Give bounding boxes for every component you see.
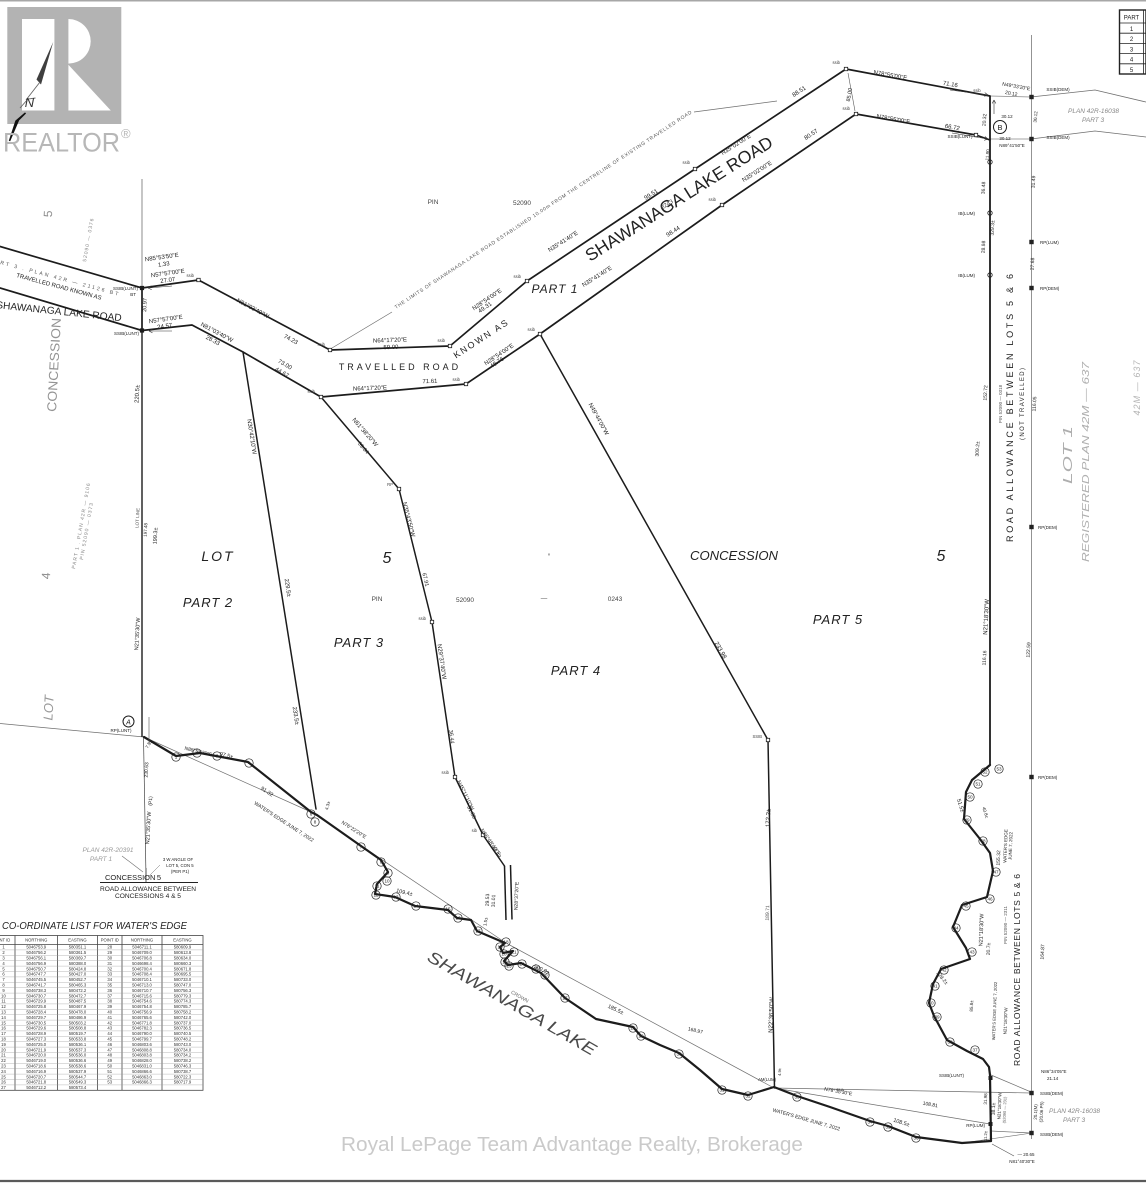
svg-text:5046747.7: 5046747.7	[26, 972, 46, 977]
svg-text:SSIB(LUNT): SSIB(LUNT)	[939, 1073, 965, 1078]
svg-text:52090: 52090	[513, 200, 531, 207]
svg-text:CO-ORDINATE LIST FOR WATER': CO-ORDINATE LIST FOR WATER'S EDGE	[2, 920, 188, 932]
svg-text:580785.7: 580785.7	[174, 1004, 192, 1009]
svg-text:24: 24	[1, 1069, 6, 1074]
svg-text:5046716.9: 5046716.9	[26, 1069, 46, 1074]
svg-text:580737.0: 580737.0	[174, 1020, 192, 1025]
svg-text:580695.5: 580695.5	[174, 972, 192, 977]
svg-text:43: 43	[107, 1026, 112, 1031]
svg-text:CONCESSION: CONCESSION	[690, 548, 779, 563]
svg-text:71.61: 71.61	[422, 379, 438, 386]
svg-text:34: 34	[867, 1120, 873, 1125]
svg-text:580533.8: 580533.8	[69, 1037, 87, 1042]
svg-text:51: 51	[975, 782, 981, 787]
svg-text:N21°18'30"W: N21°18'30"W	[1003, 1007, 1009, 1035]
svg-text:ssib: ssib	[442, 770, 450, 775]
svg-text:24: 24	[519, 962, 525, 967]
svg-text:5: 5	[41, 210, 55, 218]
svg-text:52090: 52090	[456, 597, 474, 604]
svg-text:RP: RP	[387, 482, 393, 487]
svg-text:RP(DEM): RP(DEM)	[1040, 286, 1060, 291]
svg-text:5046738.3: 5046738.3	[26, 988, 46, 993]
svg-text:PIN: PIN	[428, 199, 439, 206]
svg-text:16: 16	[455, 916, 461, 921]
svg-text:42M — 637: 42M — 637	[1132, 360, 1142, 416]
svg-text:ssib: ssib	[453, 377, 461, 382]
svg-text:580746.3: 580746.3	[174, 1064, 192, 1069]
svg-text:TRAVELLED ROAD: TRAVELLED ROAD	[339, 362, 461, 372]
svg-text:580503.2: 580503.2	[69, 1020, 87, 1025]
svg-text:189.71: 189.71	[765, 905, 772, 921]
svg-text:3 W ANGLE OF: 3 W ANGLE OF	[163, 857, 194, 862]
svg-text:44: 44	[107, 1031, 112, 1036]
svg-text:580536.0: 580536.0	[69, 1053, 87, 1058]
svg-text:5046729.9: 5046729.9	[26, 999, 46, 1004]
svg-text:REALTOR: REALTOR	[3, 128, 120, 158]
svg-text:PIN: PIN	[372, 596, 383, 603]
svg-text:31: 31	[719, 1088, 725, 1093]
svg-text:580478.0: 580478.0	[69, 1010, 87, 1015]
svg-text:35: 35	[107, 983, 112, 988]
svg-text:BT: BT	[130, 292, 136, 297]
svg-text:ssib: ssib	[187, 273, 195, 278]
svg-text:21: 21	[1, 1053, 6, 1058]
svg-text:PART 1: PART 1	[532, 282, 579, 296]
svg-text:5046750.7: 5046750.7	[26, 966, 46, 971]
svg-text:IB(LUM): IB(LUM)	[958, 273, 975, 278]
svg-text:Royal LePage Team Advantage Re: Royal LePage Team Advantage Realty, Brok…	[341, 1133, 803, 1156]
svg-text:5046710.1: 5046710.1	[132, 977, 152, 982]
svg-text:152.72: 152.72	[983, 385, 990, 401]
svg-text:8: 8	[314, 820, 317, 825]
svg-text:1: 1	[175, 755, 178, 760]
svg-text:580758.2: 580758.2	[174, 1010, 192, 1015]
svg-text:5046720.0: 5046720.0	[26, 1053, 46, 1058]
svg-text:5046715.6: 5046715.6	[132, 993, 152, 998]
svg-text:580774.3: 580774.3	[174, 999, 192, 1004]
svg-text:580467.9: 580467.9	[69, 1004, 87, 1009]
svg-text:45: 45	[107, 1037, 112, 1042]
svg-text:5046721.8: 5046721.8	[26, 1080, 46, 1085]
svg-text:CONCESSION: CONCESSION	[105, 873, 155, 882]
svg-text:31: 31	[107, 961, 112, 966]
svg-text:23: 23	[506, 964, 512, 969]
svg-text:52: 52	[982, 770, 988, 775]
svg-text:580717.9: 580717.9	[174, 1080, 192, 1085]
svg-text:JUNE 7, 2022: JUNE 7, 2022	[1008, 831, 1014, 860]
svg-text:N64°17'20"E: N64°17'20"E	[373, 337, 407, 344]
svg-text:LOT 1: LOT 1	[1061, 426, 1075, 484]
svg-text:5046728.4: 5046728.4	[26, 1010, 46, 1015]
svg-text:14: 14	[1, 1015, 6, 1020]
svg-text:4: 4	[248, 761, 251, 766]
svg-text:11: 11	[1, 999, 6, 1004]
svg-text:47: 47	[107, 1047, 112, 1052]
svg-text:580742.0: 580742.0	[174, 1015, 192, 1020]
svg-text:580671.8: 580671.8	[174, 966, 192, 971]
svg-text:36: 36	[107, 988, 112, 993]
svg-text:— 20.65: — 20.65	[1017, 1152, 1035, 1157]
svg-text:580722.3: 580722.3	[174, 1074, 192, 1079]
svg-text:5046706.8: 5046706.8	[132, 956, 152, 961]
svg-text:': '	[548, 552, 550, 562]
svg-text:5046754.8: 5046754.8	[132, 1004, 152, 1009]
svg-text:PART 3: PART 3	[334, 635, 384, 650]
svg-text:580472.7: 580472.7	[69, 993, 87, 998]
svg-text:5046803.6: 5046803.6	[132, 1042, 152, 1047]
svg-text:AM(LUM): AM(LUM)	[758, 1077, 777, 1082]
svg-text:SSIB(DEM): SSIB(DEM)	[1040, 1132, 1064, 1137]
svg-text:11.2±: 11.2±	[983, 1130, 988, 1141]
svg-text:LOT LINE: LOT LINE	[134, 508, 140, 528]
svg-text:PART 3: PART 3	[1063, 1117, 1086, 1124]
svg-text:580738.7: 580738.7	[174, 1069, 192, 1074]
svg-text:8: 8	[380, 860, 383, 865]
svg-text:IB(LUM): IB(LUM)	[958, 211, 975, 216]
svg-text:A: A	[125, 720, 131, 727]
svg-text:SSIB(LUNT): SSIB(LUNT)	[113, 286, 139, 291]
svg-text:5046727.3: 5046727.3	[26, 1037, 46, 1042]
svg-text:46: 46	[107, 1042, 112, 1047]
svg-text:580351.1: 580351.1	[69, 945, 87, 950]
svg-text:85.8±: 85.8±	[969, 1000, 974, 1012]
svg-text:15: 15	[445, 907, 451, 912]
svg-text:PNT ID: PNT ID	[0, 938, 10, 943]
svg-text:580388.0: 580388.0	[69, 961, 87, 966]
svg-text:(PER P1): (PER P1)	[171, 869, 190, 874]
svg-text:33: 33	[107, 972, 112, 977]
svg-text:ssib: ssib	[528, 327, 536, 332]
svg-text:N22°36'50"W: N22°36'50"W	[768, 997, 775, 1033]
svg-text:PART 2: PART 2	[183, 595, 233, 610]
svg-text:12: 12	[373, 893, 379, 898]
svg-text:5046730.7: 5046730.7	[26, 993, 46, 998]
svg-text:33: 33	[794, 1095, 800, 1100]
svg-text:580452.7: 580452.7	[69, 977, 87, 982]
svg-text:6: 6	[310, 812, 313, 817]
svg-text:19: 19	[1, 1042, 6, 1047]
svg-text:5046720.7: 5046720.7	[26, 1074, 46, 1079]
svg-text:39: 39	[934, 1015, 940, 1020]
svg-text:52: 52	[107, 1074, 112, 1079]
svg-text:5046700.4: 5046700.4	[132, 966, 152, 971]
svg-text:580465.3: 580465.3	[69, 983, 87, 988]
svg-text:25: 25	[1, 1074, 6, 1079]
svg-text:5046866.3: 5046866.3	[132, 1080, 152, 1085]
svg-text:20.32: 20.32	[981, 113, 988, 126]
svg-text:43: 43	[969, 950, 975, 955]
svg-text:0243: 0243	[608, 596, 623, 603]
svg-text:580738.2: 580738.2	[174, 1058, 192, 1063]
svg-text:580424.8: 580424.8	[69, 966, 87, 971]
svg-text:REGISTERED PLAN 42M —: REGISTERED PLAN 42M — 637	[1081, 361, 1092, 562]
svg-text:5046756.9: 5046756.9	[26, 961, 46, 966]
svg-text:RP(LUM): RP(LUM)	[1040, 240, 1059, 245]
svg-text:(52090 — 231): (52090 — 231)	[1002, 1096, 1008, 1124]
svg-text:5046712.2: 5046712.2	[26, 1085, 46, 1090]
svg-text:53: 53	[107, 1080, 112, 1085]
svg-text:5: 5	[157, 873, 161, 882]
svg-text:17: 17	[475, 929, 481, 934]
svg-text:—: —	[541, 595, 548, 602]
svg-text:580747.0: 580747.0	[174, 983, 192, 988]
svg-text:580660.3: 580660.3	[174, 961, 192, 966]
svg-text:580544.7: 580544.7	[69, 1074, 87, 1079]
svg-text:28: 28	[630, 1026, 636, 1031]
svg-text:220.5±: 220.5±	[135, 384, 142, 403]
svg-text:580609.9: 580609.9	[174, 945, 192, 950]
svg-text:5046713.0: 5046713.0	[132, 983, 152, 988]
svg-text:PART 1: PART 1	[90, 856, 113, 863]
svg-text:13: 13	[1, 1010, 6, 1015]
svg-text:29: 29	[107, 950, 112, 955]
svg-text:5046831.0: 5046831.0	[132, 1064, 152, 1069]
svg-text:(20.06 P5): (20.06 P5)	[1039, 1101, 1045, 1123]
svg-text:5046710.7: 5046710.7	[132, 988, 152, 993]
svg-text:5: 5	[383, 550, 392, 567]
svg-text:164.87: 164.87	[1040, 944, 1047, 960]
svg-text:580748.2: 580748.2	[174, 1037, 192, 1042]
svg-text:155.32: 155.32	[996, 850, 1003, 866]
svg-text:5046863.0: 5046863.0	[132, 1074, 152, 1079]
svg-text:40: 40	[928, 1001, 934, 1006]
svg-text:sib: sib	[472, 828, 478, 833]
svg-text:5046790.0: 5046790.0	[132, 1031, 152, 1036]
svg-text:N21°18'30"W: N21°18'30"W	[978, 913, 985, 947]
svg-text:40: 40	[107, 1010, 112, 1015]
svg-text:122.59: 122.59	[1026, 642, 1033, 658]
svg-text:580519.7: 580519.7	[69, 1031, 87, 1036]
svg-text:580537.3: 580537.3	[69, 1047, 87, 1052]
svg-text:31.98: 31.98	[983, 1093, 988, 1105]
svg-text:580427.0: 580427.0	[69, 972, 87, 977]
svg-text:39: 39	[107, 1004, 112, 1009]
svg-text:29: 29	[638, 1034, 644, 1039]
svg-text:23: 23	[1, 1064, 6, 1069]
svg-text:309.2±: 309.2±	[975, 441, 982, 457]
svg-text:37: 37	[972, 1048, 978, 1053]
svg-text:PART 3: PART 3	[1082, 117, 1105, 124]
svg-text:44: 44	[953, 926, 959, 931]
svg-text:46: 46	[987, 897, 993, 902]
svg-text:580486.9: 580486.9	[69, 1015, 87, 1020]
svg-text:116.16: 116.16	[982, 650, 989, 665]
svg-text:21: 21	[511, 950, 517, 955]
svg-text:580736.5: 580736.5	[174, 1026, 192, 1031]
svg-text:PLAN 42R-16038: PLAN 42R-16038	[1049, 1108, 1100, 1115]
svg-text:PLAN 42R-16038: PLAN 42R-16038	[1068, 108, 1119, 115]
svg-text:580573.4: 580573.4	[69, 1085, 87, 1090]
svg-text:580779.3: 580779.3	[174, 993, 192, 998]
svg-text:13: 13	[393, 895, 399, 900]
svg-text:28.98: 28.98	[981, 240, 988, 253]
svg-text:PART: PART	[1124, 16, 1140, 22]
svg-text:38: 38	[107, 999, 112, 1004]
svg-text:9: 9	[387, 871, 390, 876]
svg-text:5046721.9: 5046721.9	[26, 1047, 46, 1052]
svg-text:41: 41	[932, 984, 938, 989]
svg-text:5046719.0: 5046719.0	[26, 1058, 46, 1063]
svg-text:580361.5: 580361.5	[69, 950, 87, 955]
svg-text:N81°40'30"E: N81°40'30"E	[1009, 1159, 1035, 1164]
svg-text:4: 4	[39, 572, 53, 580]
svg-text:10: 10	[1, 993, 6, 998]
svg-text:5046741.7: 5046741.7	[26, 983, 46, 988]
svg-text:5: 5	[937, 548, 946, 565]
svg-text:32: 32	[107, 966, 112, 971]
svg-text:116.05: 116.05	[1032, 396, 1039, 411]
svg-text:5046866.6: 5046866.6	[132, 1069, 152, 1074]
svg-text:5046799.7: 5046799.7	[132, 1037, 152, 1042]
svg-text:5046753.9: 5046753.9	[26, 945, 46, 950]
svg-text:5046803.8: 5046803.8	[132, 1053, 152, 1058]
svg-text:18: 18	[503, 940, 509, 945]
svg-text:SSIB(LUNT): SSIB(LUNT)	[114, 331, 140, 336]
svg-text:17: 17	[1, 1031, 6, 1036]
svg-text:SSIB: SSIB	[752, 734, 762, 739]
svg-text:RP(LUNT): RP(LUNT)	[111, 728, 133, 733]
svg-text:580487.5: 580487.5	[69, 999, 87, 1004]
svg-text:ROAD ALLOWANCE BETWEEN LOTS 5: ROAD ALLOWANCE BETWEEN LOTS 5 & 6	[1012, 874, 1022, 1066]
svg-text:EASTING: EASTING	[173, 938, 191, 943]
svg-text:5046729.7: 5046729.7	[26, 1015, 46, 1020]
svg-text:5046756.9: 5046756.9	[132, 1010, 152, 1015]
svg-text:49: 49	[964, 818, 970, 823]
svg-text:580756.3: 580756.3	[174, 988, 192, 993]
svg-text:580743.0: 580743.0	[174, 1042, 192, 1047]
svg-text:ROAD ALLOWANCE BETWEEN: ROAD ALLOWANCE BETWEEN	[100, 886, 196, 893]
svg-text:20.7±: 20.7±	[986, 942, 992, 955]
svg-text:5046730.5: 5046730.5	[26, 1020, 46, 1025]
svg-text:®: ®	[121, 126, 131, 141]
svg-text:LOT: LOT	[40, 694, 56, 721]
svg-text:580634.0: 580634.0	[174, 956, 192, 961]
svg-text:18: 18	[1, 1037, 6, 1042]
svg-text:35: 35	[885, 1125, 891, 1130]
svg-text:RP(DEM): RP(DEM)	[1038, 525, 1058, 530]
svg-text:580536.1: 580536.1	[69, 1042, 87, 1047]
svg-text:36: 36	[913, 1136, 919, 1141]
svg-text:22: 22	[1, 1058, 6, 1063]
svg-text:27: 27	[562, 996, 568, 1001]
svg-text:50: 50	[967, 795, 973, 800]
svg-text:48: 48	[107, 1053, 112, 1058]
svg-text:49: 49	[107, 1058, 112, 1063]
svg-text:7: 7	[360, 845, 363, 850]
svg-text:20: 20	[501, 952, 507, 957]
svg-text:NORTHING: NORTHING	[131, 938, 153, 943]
svg-text:16: 16	[1, 1026, 6, 1031]
svg-text:RP(DEM): RP(DEM)	[1038, 775, 1058, 780]
svg-text:5046718.6: 5046718.6	[26, 1064, 46, 1069]
svg-text:5046708.4: 5046708.4	[132, 972, 152, 977]
svg-text:SSIB(LUNT): SSIB(LUNT)	[947, 134, 973, 139]
svg-text:N86°34'05"E: N86°34'05"E	[1041, 1069, 1067, 1074]
svg-text:5046765.6: 5046765.6	[132, 1015, 152, 1020]
svg-text:5046828.0: 5046828.0	[132, 1058, 152, 1063]
svg-text:5046771.8: 5046771.8	[132, 1020, 152, 1025]
svg-text:30.12: 30.12	[1033, 111, 1039, 123]
svg-text:4.9±: 4.9±	[777, 1067, 782, 1076]
svg-text:197.48: 197.48	[143, 522, 149, 537]
svg-text:41: 41	[107, 1015, 112, 1020]
svg-text:5046728.9: 5046728.9	[26, 1031, 46, 1036]
svg-text:580740.5: 580740.5	[174, 1031, 192, 1036]
svg-text:LOT 5, CON 5: LOT 5, CON 5	[166, 863, 194, 868]
svg-text:36.48: 36.48	[981, 181, 988, 194]
svg-text:31.01: 31.01	[491, 894, 497, 907]
svg-text:28: 28	[107, 945, 112, 950]
svg-text:30: 30	[676, 1052, 682, 1057]
svg-text:N64°17'20"E: N64°17'20"E	[353, 385, 387, 392]
svg-text:5046808.8: 5046808.8	[132, 1047, 152, 1052]
svg-text:LOT: LOT	[201, 548, 234, 564]
svg-text:SSIB(DEM): SSIB(DEM)	[1046, 87, 1070, 92]
svg-text:47: 47	[993, 870, 999, 875]
svg-text:21.14: 21.14	[1047, 1076, 1059, 1081]
svg-text:14: 14	[413, 904, 419, 909]
svg-text:30.12: 30.12	[1001, 114, 1013, 119]
svg-text:NORTHING: NORTHING	[25, 938, 47, 943]
svg-text:32: 32	[745, 1094, 751, 1099]
svg-text:ssib: ssib	[973, 88, 981, 93]
svg-text:5046756.1: 5046756.1	[26, 956, 46, 961]
svg-text:PIN 52090 — 0318: PIN 52090 — 0318	[998, 384, 1003, 423]
svg-text:ssib: ssib	[308, 389, 316, 394]
svg-text:5046729.6: 5046729.6	[26, 1026, 46, 1031]
svg-text:ssib: ssib	[318, 342, 326, 347]
svg-text:5046754.6: 5046754.6	[132, 999, 152, 1004]
svg-text:580537.9: 580537.9	[69, 1069, 87, 1074]
svg-text:ssib: ssib	[514, 274, 522, 279]
svg-text:34: 34	[107, 977, 112, 982]
svg-text:ssib: ssib	[709, 197, 717, 202]
svg-text:5046725.0: 5046725.0	[26, 1042, 46, 1047]
svg-text:5046745.5: 5046745.5	[26, 977, 46, 982]
svg-text:580734.0: 580734.0	[174, 1047, 192, 1052]
svg-text:42: 42	[107, 1020, 112, 1025]
svg-text:42: 42	[941, 968, 947, 973]
svg-text:N28°37'20"E: N28°37'20"E	[514, 881, 521, 910]
svg-text:ssib: ssib	[419, 616, 427, 621]
svg-text:EASTING: EASTING	[68, 938, 86, 943]
svg-text:PART 5: PART 5	[813, 612, 863, 627]
svg-text:PART 4: PART 4	[551, 663, 601, 678]
svg-text:580536.6: 580536.6	[69, 1058, 87, 1063]
svg-text:51: 51	[107, 1069, 112, 1074]
svg-text:ssib: ssib	[843, 106, 851, 111]
svg-text:580733.0: 580733.0	[174, 977, 192, 982]
svg-text:20: 20	[1, 1047, 6, 1052]
svg-text:SSIB(DEM): SSIB(DEM)	[1046, 135, 1070, 140]
svg-text:580472.2: 580472.2	[69, 988, 87, 993]
svg-text:50: 50	[107, 1064, 112, 1069]
svg-text:199.3±: 199.3±	[153, 527, 160, 544]
svg-text:ssib: ssib	[438, 338, 446, 343]
svg-text:37: 37	[107, 993, 112, 998]
svg-text:RP(LUM): RP(LUM)	[966, 1123, 985, 1128]
svg-text:30: 30	[107, 956, 112, 961]
svg-text:N89°41'50"E: N89°41'50"E	[999, 143, 1025, 148]
svg-text:5046756.2: 5046756.2	[26, 950, 46, 955]
svg-text:580613.8: 580613.8	[174, 950, 192, 955]
svg-text:53: 53	[996, 767, 1002, 772]
svg-text:5046782.3: 5046782.3	[132, 1026, 152, 1031]
svg-text:19: 19	[497, 945, 503, 950]
svg-text:20.1(M): 20.1(M)	[1033, 1104, 1039, 1120]
svg-text:27: 27	[1, 1085, 6, 1090]
svg-text:N: N	[25, 95, 35, 110]
